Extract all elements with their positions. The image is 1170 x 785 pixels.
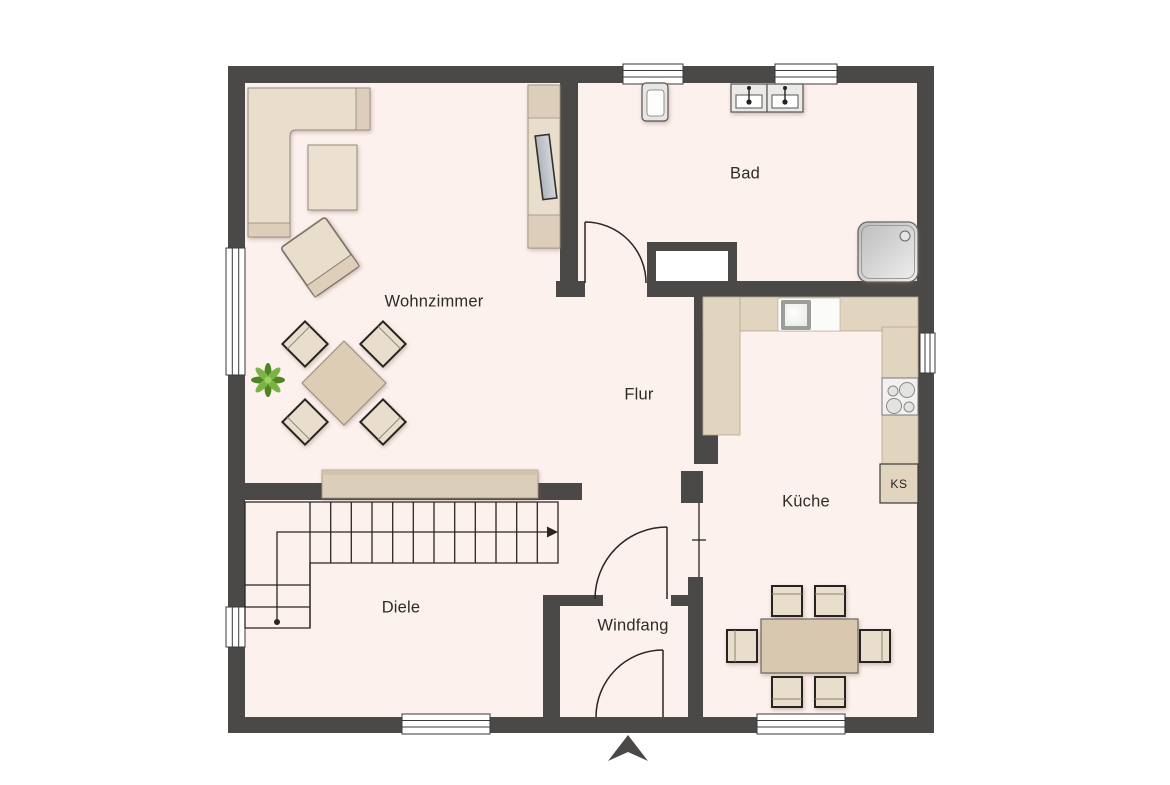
wall-livingroom-hall — [560, 83, 578, 281]
shower-drain — [900, 231, 910, 241]
wall-bath-bottom — [737, 281, 917, 297]
double-washbasin — [731, 84, 803, 112]
wall-outer-right — [917, 66, 934, 733]
toilet — [642, 83, 668, 121]
room-label-bad: Bad — [730, 165, 760, 184]
window-right-kitchen — [920, 333, 935, 373]
room-label-diele: Diele — [382, 599, 421, 618]
room-label-kueche: Küche — [782, 493, 830, 512]
tv-sideboard — [528, 85, 560, 248]
window-left-livingroom — [226, 248, 245, 375]
shower — [858, 222, 918, 282]
window-top-bath-1 — [623, 64, 683, 84]
wall-kitchen-left — [694, 297, 703, 435]
wall-foot-block — [556, 281, 585, 297]
chair — [772, 586, 802, 616]
room-label-wohnzimmer: Wohnzimmer — [385, 293, 484, 312]
window-left-hall — [226, 607, 245, 647]
fridge-label: KS — [890, 477, 907, 491]
kitchen-counter-left — [703, 297, 740, 435]
wall-kitchen-pillar-b — [681, 471, 703, 503]
chair — [772, 677, 802, 707]
wall-windfang-left — [543, 595, 560, 717]
chair — [815, 586, 845, 616]
wall-windfang-stub — [671, 595, 688, 606]
chair — [815, 677, 845, 707]
chair — [727, 630, 757, 662]
window-top-bath-2 — [775, 64, 837, 84]
room-label-flur: Flur — [624, 386, 653, 405]
window-bottom-kitchen — [757, 714, 845, 734]
wall-kitchen-pillar-a — [694, 435, 718, 464]
sideboard-stairs — [322, 470, 538, 498]
chimney-shaft-inner — [656, 251, 728, 281]
kitchen-sink — [778, 298, 840, 331]
wall-windfang-right — [688, 577, 703, 717]
coffee-table — [308, 145, 357, 210]
sofa-armrest-bottom — [248, 223, 290, 237]
kitchen-table — [761, 619, 858, 673]
entrance-arrow — [608, 735, 648, 761]
chair — [860, 630, 890, 662]
room-label-windfang: Windfang — [597, 617, 668, 636]
floorplan-canvas: Wohnzimmer Bad Flur Küche Diele Windfang… — [0, 0, 1170, 785]
floorplan-svg — [0, 0, 1170, 785]
stove — [882, 378, 918, 415]
window-bottom-hall — [402, 714, 490, 734]
sofa-armrest-right — [356, 88, 370, 130]
